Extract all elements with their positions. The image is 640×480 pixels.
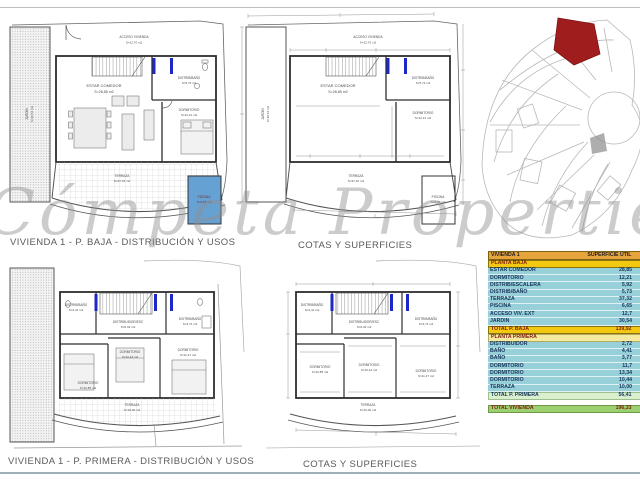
access-area-label: S=12,70 m2 (360, 41, 377, 45)
living-label: ESTAR COMEDOR (86, 83, 121, 88)
cell-const: 0 (632, 319, 640, 324)
total-util: 56,41 (584, 393, 631, 398)
bedroom-center-label: DORMITORIO (359, 363, 380, 367)
bedroom-center-area: S=10,44 m2 (122, 355, 139, 359)
cell-label: JARDIN (488, 319, 584, 324)
site-plan (462, 10, 640, 250)
cell-util: 3,77 (584, 356, 632, 361)
table-row: BAÑO3,770 (488, 356, 640, 363)
window-marker (154, 294, 157, 311)
cell-util: 10,44 (584, 378, 632, 383)
cell-util: 12,21 (584, 276, 632, 281)
sheet-top-border (0, 7, 640, 8)
cell-label: DISTRIB/BAÑO (488, 290, 584, 295)
window-marker (153, 58, 156, 74)
plan-first-floor-uses: DISTRIB/BAÑO S=4,41 m2 DISTRIBUIDOR/ESC … (4, 256, 249, 456)
bedroom-label: DORMITORIO (413, 111, 434, 115)
terrace-label: TERRAZA (361, 403, 377, 407)
bedroom-right-area: S=11,27 m2 (180, 353, 196, 357)
cell-label: DISTRIBUIDOR (488, 342, 584, 347)
total-planta-baja: TOTAL P. BAJA139,9260,03 (488, 326, 640, 334)
cell-util: 2,72 (584, 342, 632, 347)
table-row: JARDIN30,540 (488, 318, 640, 325)
table-row: DISTRIBUIDOR2,7250,59 (488, 342, 640, 349)
cell-util: 37,32 (584, 297, 632, 302)
hall-label: DISTRIBUIDOR/ESC (349, 320, 380, 324)
living-label: ESTAR COMEDOR (320, 83, 355, 88)
surfaces-table: VIVIENDA 1 SUPERFICIE ÚTIL SUP. CONSTRUI… (488, 251, 640, 419)
plan-ground-floor-dims: JARDÍN S=30,54 m2 ACCESO VIVIENDA S=12,7… (240, 10, 466, 236)
cell-label: ESTAR COMEDOR (488, 268, 584, 273)
table-header-row: VIVIENDA 1 SUPERFICIE ÚTIL SUP. CONSTRUI… (488, 251, 640, 260)
bedroom-left-area: S=10,85 m2 (312, 370, 329, 374)
table-row: BAÑO4,410 (488, 349, 640, 356)
hall-area: S=6,02 m2 (357, 325, 372, 329)
bath-left-label: DISTRIB/BAÑO (65, 302, 88, 307)
window-marker (170, 294, 173, 311)
stairs (92, 57, 142, 76)
cell-label: DORMITORIO (488, 364, 584, 369)
highlighted-plot (554, 18, 600, 65)
bedroom-right-label: DORMITORIO (416, 369, 437, 373)
shaded-plot (590, 133, 607, 154)
cell-const: 0 (632, 304, 640, 309)
cell-label: PISCINA (488, 304, 584, 309)
total-label: TOTAL P. PRIMERA (489, 393, 584, 398)
total-planta-primera: TOTAL P. PRIMERA56,4150,59 (488, 392, 640, 400)
access-label: ACCESO VIVIENDA (353, 35, 383, 39)
stairs (336, 293, 388, 314)
cell-label: BAÑO (488, 349, 584, 354)
pool-label: PISCINA (432, 195, 446, 199)
terrace-edge (290, 414, 456, 426)
terrace-area-label: S=10,00 m2 (360, 408, 377, 412)
cell-util: 12,7 (584, 312, 632, 317)
plan-sheet: JARDÍN S=30,54 m2 ACCESO VIVIENDA S=12,7… (0, 0, 640, 480)
bed-icon (181, 120, 213, 154)
section-title: PLANTA BAJA (489, 261, 584, 266)
living-area-label: S=28,85 m2 (328, 90, 347, 94)
cell-label: DORMITORIO (488, 371, 584, 376)
stairs (326, 57, 376, 76)
cell-const: 0 (632, 356, 640, 361)
cell-util: 4,41 (584, 349, 632, 354)
bath-label: DISTRIB/BAÑO (412, 75, 435, 80)
terrace-side (286, 162, 290, 198)
caption-ground-floor-uses: VIVIENDA 1 - P. BAJA - DISTRIBUCIÓN Y US… (10, 237, 235, 248)
total-label: TOTAL P. BAJA (489, 327, 584, 332)
cell-label: DISTRIB/ESCALERA (488, 283, 584, 288)
sheet-bottom-border (0, 472, 640, 474)
terrace-label: TERRAZA (115, 174, 131, 178)
cell-const: 0 (632, 283, 640, 288)
terrace-side (52, 162, 56, 198)
cell-const: 0 (632, 378, 640, 383)
garden-area-label: S=30,54 m2 (30, 106, 34, 123)
total-const: 60,03 (631, 327, 640, 332)
bedroom-left-label: DORMITORIO (78, 381, 99, 385)
cell-const: 50,59 (632, 342, 640, 347)
window-marker (331, 294, 334, 311)
cell-label: TERRAZA (488, 385, 584, 390)
cell-util: 30,54 (584, 319, 632, 324)
window-marker (95, 294, 98, 311)
bath-left-area: S=4,41 m2 (305, 308, 320, 312)
cell-util: 5,92 (584, 283, 632, 288)
cell-const: 0 (632, 385, 640, 390)
bedroom-left-label: DORMITORIO (310, 365, 331, 369)
bedroom-center-label: DORMITORIO (120, 350, 141, 354)
cell-const: 0 (632, 312, 640, 317)
bath-right-area: S=3,74 m2 (419, 322, 434, 326)
table-row: TERRAZA10,000 (488, 385, 640, 392)
pool-label: PISCINA (198, 195, 212, 199)
section-title: PLANTA PRIMERA (489, 335, 584, 340)
cell-util: 11,7 (584, 364, 632, 369)
bedroom-left-area: S=10,85 m2 (80, 386, 97, 390)
table-row: ACCESO VIV. EXT12,70 (488, 311, 640, 318)
cell-label: BAÑO (488, 356, 584, 361)
bath-left-area: S=4,41 m2 (69, 308, 84, 312)
window-marker (404, 58, 407, 74)
plan-first-floor-dims: DISTRIB/BAÑO S=4,41 m2 DISTRIBUIDOR/ESC … (256, 256, 486, 456)
bedroom-area-label: S=12,21 m2 (181, 113, 198, 117)
cell-label: DORMITORIO (488, 378, 584, 383)
hall-label: DISTRIBUIDOR/ESC (113, 320, 144, 324)
entry-door-arc (66, 25, 81, 40)
bath-area-label: S=5,73 m2 (416, 81, 431, 85)
grand-total-util: 196,33 (584, 406, 631, 411)
bedroom-center-area: S=10,44 m2 (361, 368, 378, 372)
access-area-label: S=12,70 m2 (126, 41, 143, 45)
bath-right-label: DISTRIB/BAÑO (415, 316, 438, 321)
cell-const: 0 (632, 290, 640, 295)
cell-const: 0 (632, 364, 640, 369)
cell-util: 5,73 (584, 290, 632, 295)
terrace-area-label: S=10,00 m2 (124, 408, 141, 412)
cell-util: 28,85 (584, 268, 632, 273)
garden-area (10, 268, 54, 442)
bedroom-right-label: DORMITORIO (178, 348, 199, 352)
living-area-label: S=28,85 m2 (94, 90, 113, 94)
terrace-outer-edge (284, 204, 459, 218)
terrace-area-label: S=37,32 m2 (114, 179, 131, 183)
garden-area-label: S=30,54 m2 (266, 106, 270, 123)
cell-label: TERRAZA (488, 297, 584, 302)
terrace-area-label: S=37,32 m2 (348, 179, 365, 183)
table-header-vivienda: VIVIENDA 1 (489, 253, 584, 258)
cell-util: 10,00 (584, 385, 632, 390)
pool-area-label: S=6,65 m2 (431, 200, 446, 204)
plan-ground-floor-uses: JARDÍN S=30,54 m2 ACCESO VIVIENDA S=12,7… (4, 10, 234, 236)
bath-area-label: S=5,73 m2 (182, 81, 197, 85)
terrace-label: TERRAZA (125, 403, 141, 407)
caption-first-floor-dims: COTAS Y SUPERFICIES (303, 459, 417, 470)
total-const: 50,59 (631, 393, 640, 398)
window-marker (387, 58, 390, 74)
garden-label: JARDÍN (25, 108, 29, 120)
pool-area-label: S=6,65 m2 (197, 200, 212, 204)
bath-right-label: DISTRIB/BAÑO (179, 316, 202, 321)
bedroom-label: DORMITORIO (179, 108, 200, 112)
cell-const: 0 (632, 371, 640, 376)
grand-total-label: TOTAL VIVIENDA (489, 406, 584, 411)
caption-ground-floor-dims: COTAS Y SUPERFICIES (298, 240, 412, 251)
cell-const: 0 (632, 349, 640, 354)
total-util: 139,92 (584, 327, 631, 332)
window-marker (170, 58, 173, 74)
cell-const: 60,03 (632, 268, 640, 273)
cell-const: 0 (632, 276, 640, 281)
hall-area: S=6,02 m2 (121, 325, 136, 329)
bath-right-area: S=3,74 m2 (183, 322, 198, 326)
window-marker (390, 294, 393, 311)
grand-total-const: 110,62 (631, 406, 640, 411)
access-label: ACCESO VIVIENDA (119, 35, 149, 39)
bedroom-right-area: S=11,27 m2 (418, 374, 434, 378)
bath-left-label: DISTRIB/BAÑO (301, 302, 324, 307)
bath-label: DISTRIB/BAÑO (178, 75, 201, 80)
stairs (100, 293, 152, 314)
cell-util: 13,34 (584, 371, 632, 376)
terrace-label: TERRAZA (349, 174, 365, 178)
table-header-construida: SUP. CONSTRUIDA (631, 251, 640, 261)
cell-util: 6,65 (584, 304, 632, 309)
cell-label: DORMITORIO (488, 276, 584, 281)
window-marker (406, 294, 409, 311)
caption-first-floor-uses: VIVIENDA 1 - P. PRIMERA - DISTRIBUCIÓN Y… (8, 456, 254, 467)
cell-label: ACCESO VIV. EXT (488, 312, 584, 317)
garden-label: JARDÍN (261, 108, 265, 120)
table-header-util: SUPERFICIE ÚTIL (584, 253, 631, 258)
total-vivienda: TOTAL VIVIENDA196,33110,62 (488, 405, 640, 414)
cell-const: 0 (632, 297, 640, 302)
bedroom-area-label: S=12,21 m2 (415, 116, 432, 120)
